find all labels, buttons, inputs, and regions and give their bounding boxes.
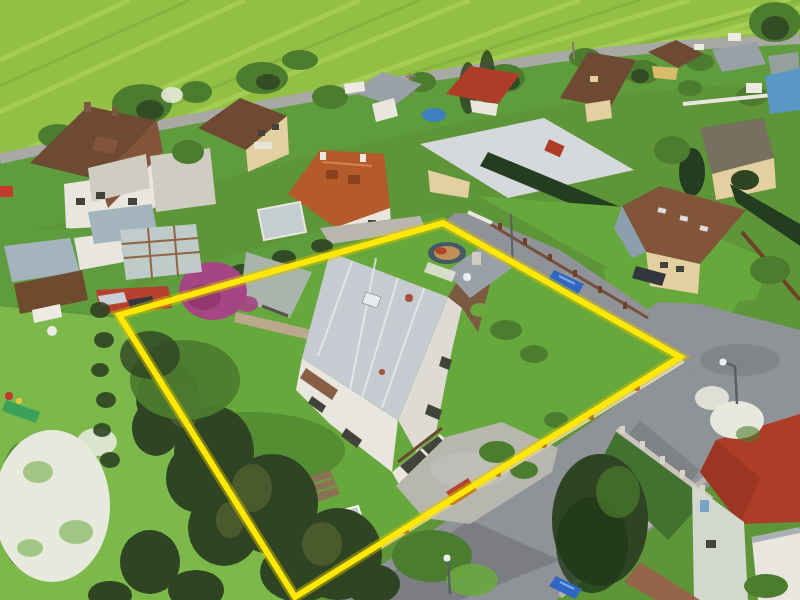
garden-pool (422, 108, 446, 122)
neighbor-greenhouse (120, 224, 202, 280)
satellite-dish (463, 273, 471, 281)
small-blossom-tree (161, 87, 183, 103)
white-van (694, 44, 704, 50)
chimney (320, 152, 326, 160)
chimney (84, 102, 91, 112)
chimney (360, 154, 366, 162)
aerial-photo-canvas (0, 0, 800, 600)
window (706, 540, 716, 548)
roof-rust-patch (379, 369, 385, 375)
house-wall (652, 66, 678, 80)
yard-tree (172, 140, 204, 164)
yard-tree (750, 256, 790, 284)
small-shrub (470, 303, 490, 317)
shrub (744, 574, 788, 598)
garden-table (47, 326, 57, 336)
house-wall (765, 68, 800, 114)
dormer (348, 175, 360, 184)
magenta-shrub (236, 296, 258, 312)
lamp-head (444, 555, 451, 562)
yard-tree (731, 170, 759, 190)
dormer (326, 170, 338, 179)
roof-rust-patch (405, 294, 413, 302)
white-van (728, 33, 741, 41)
aerial-photo (0, 0, 800, 600)
balcony (254, 142, 272, 149)
red-car (0, 186, 13, 197)
garden-trampoline (428, 242, 466, 264)
yard-tree (654, 136, 690, 164)
chimney (472, 252, 481, 265)
dormer (590, 76, 598, 82)
chimney (112, 107, 118, 116)
shadow (700, 344, 780, 376)
lamp-head (720, 359, 727, 366)
white-truck (746, 83, 762, 93)
bush (446, 564, 498, 596)
window-blue (700, 500, 709, 512)
conservatory (258, 202, 306, 240)
